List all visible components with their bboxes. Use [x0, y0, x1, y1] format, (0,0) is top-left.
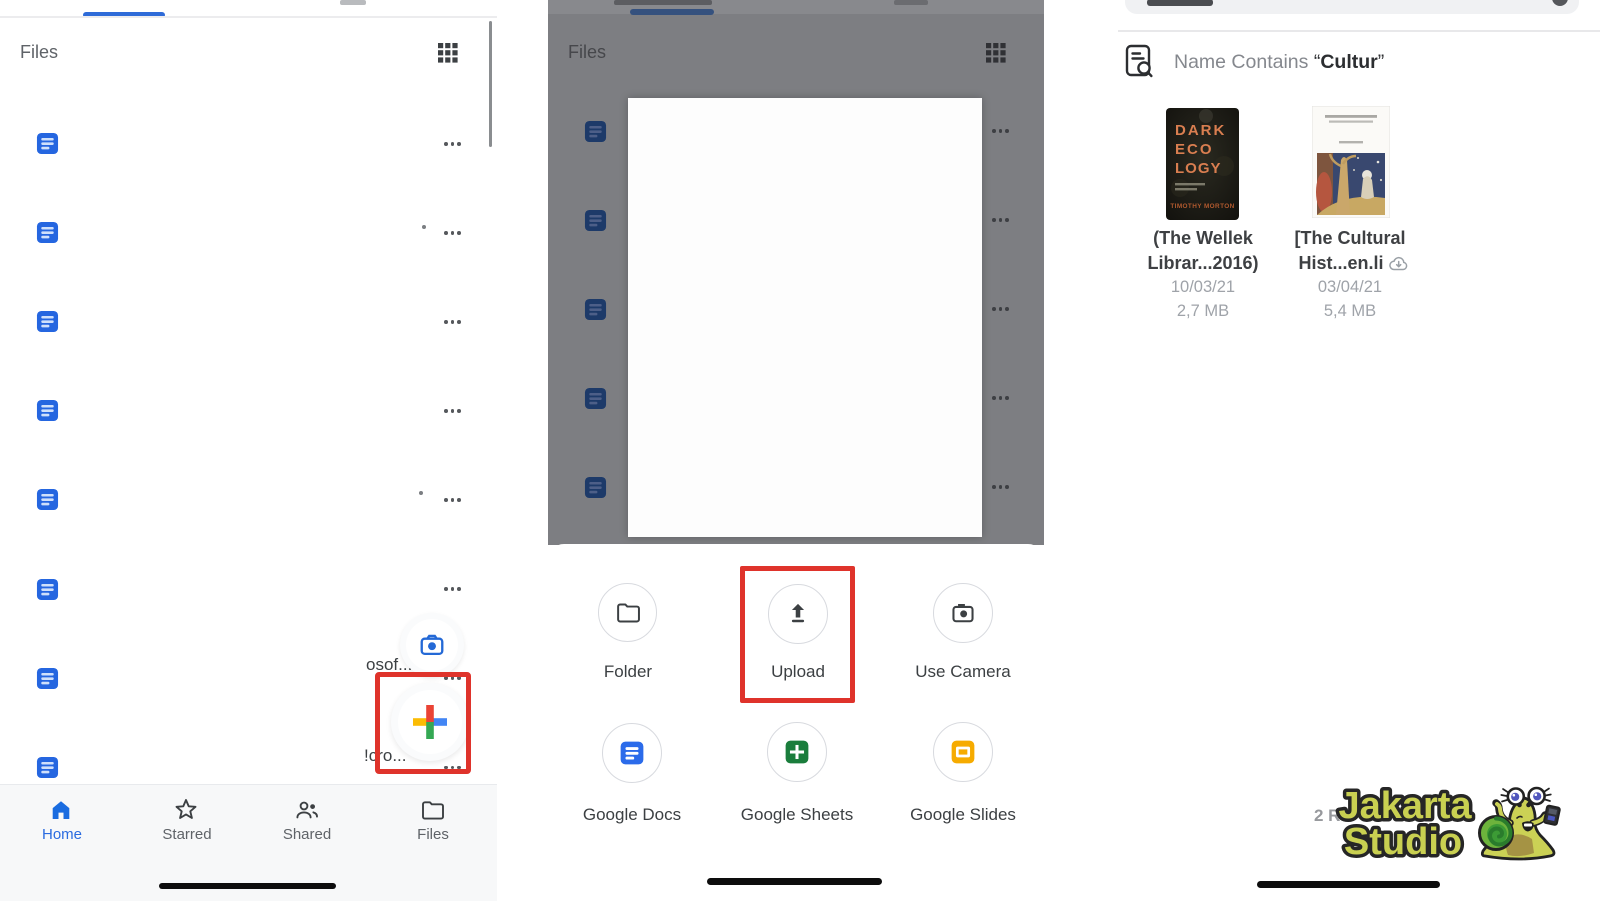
svg-text:ECO: ECO — [1175, 141, 1214, 158]
svg-text:Studio: Studio — [1344, 821, 1462, 863]
svg-text:LOGY: LOGY — [1175, 160, 1222, 177]
svg-text:DARK: DARK — [1175, 122, 1226, 139]
svg-text:TIMOTHY MORTON: TIMOTHY MORTON — [1170, 203, 1234, 210]
